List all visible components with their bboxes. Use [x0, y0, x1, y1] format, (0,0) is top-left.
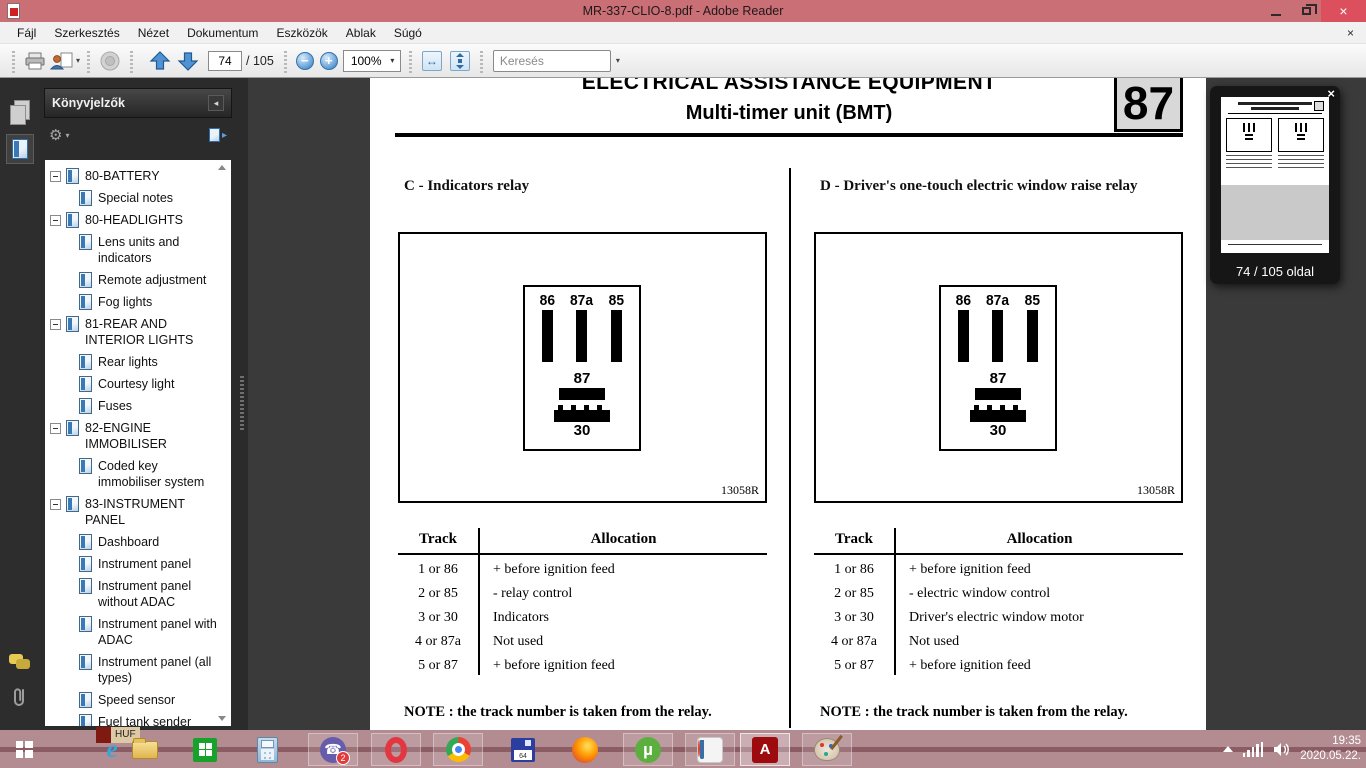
bookmark-icon	[79, 294, 92, 310]
menubar-close-icon[interactable]: ×	[1347, 22, 1354, 44]
bookmark-icon	[66, 168, 79, 184]
bookmark-icon	[66, 496, 79, 512]
folder-icon	[132, 741, 158, 759]
print-button[interactable]	[22, 48, 48, 74]
pdf-page: ELECTRICAL ASSISTANCE EQUIPMENT Multi-ti…	[370, 78, 1206, 730]
page-position-label: 74 / 105 oldal	[1210, 264, 1340, 279]
taskbar-file-explorer[interactable]	[120, 733, 170, 766]
system-tray: 19:35 2020.05.22.	[1223, 730, 1361, 768]
page-title-line1: ELECTRICAL ASSISTANCE EQUIPMENT	[395, 78, 1183, 95]
taskbar-utorrent[interactable]: µ	[623, 733, 673, 766]
bookmark-item[interactable]: Instrument panel (all types)	[45, 651, 231, 689]
mini-title-line	[1238, 102, 1312, 105]
menu-bar: Fájl Szerkesztés Nézet Dokumentum Eszköz…	[0, 22, 1366, 44]
collaborate-icon	[50, 51, 74, 71]
page-title-line2: Multi-timer unit (BMT)	[395, 102, 1183, 125]
firefox-icon	[572, 737, 598, 763]
menu-window[interactable]: Ablak	[337, 24, 385, 42]
viber-icon: ☎ 2	[320, 737, 346, 763]
bookmark-icon	[79, 534, 92, 550]
pin-bar	[992, 310, 1003, 362]
minus-icon: −	[301, 53, 309, 69]
pin-bar	[1027, 310, 1038, 362]
table-row: 1 or 86+ before ignition feed	[398, 555, 767, 579]
relay-top-pins: 86 87a 85	[941, 292, 1055, 362]
bookmarks-toolbar: ⚙ ▾ ▸	[40, 118, 236, 152]
chevron-left-icon: ◂	[214, 98, 219, 109]
bookmarks-header: Könyvjelzők ◂	[44, 88, 232, 118]
pin-bar	[975, 388, 1021, 400]
bookmark-item[interactable]: Remote adjustment	[45, 269, 231, 291]
bookmark-icon	[79, 398, 92, 414]
bookmark-icon	[79, 190, 92, 206]
mini-title-line	[1251, 107, 1299, 110]
bookmark-item[interactable]: Instrument panel	[45, 553, 231, 575]
table-row: 2 or 85- electric window control	[814, 579, 1183, 603]
bookmark-item[interactable]: Fuses	[45, 395, 231, 417]
mini-column	[1226, 118, 1272, 168]
section-heading: C - Indicators relay	[398, 178, 768, 195]
menu-edit[interactable]: Szerkesztés	[45, 24, 128, 42]
bookmark-icon	[79, 376, 92, 392]
opera-icon	[385, 737, 407, 763]
calculator-icon	[257, 737, 278, 763]
main-area: Könyvjelzők ◂ ⚙ ▾ ▸ 80-BATTERY Special n…	[0, 78, 1366, 730]
bookmark-icon	[79, 616, 92, 632]
taskbar: HUF e ☎ 2 64 µ A 19:35 2020.05.22.	[0, 730, 1366, 768]
bookmark-item[interactable]: 82-ENGINE IMMOBILISER	[45, 417, 231, 455]
floppy-icon: 64	[511, 738, 535, 762]
collapse-panel-button[interactable]: ◂	[208, 95, 224, 111]
relay-pin: 86	[539, 292, 556, 362]
utorrent-icon: µ	[635, 737, 661, 763]
comments-icon[interactable]	[9, 654, 31, 672]
pin-bar	[542, 310, 553, 362]
table-header: Track Allocation	[814, 528, 1183, 555]
bookmark-icon	[79, 458, 92, 474]
mini-chapter-box	[1314, 101, 1324, 111]
pin-bar	[611, 310, 622, 362]
tray-time: 19:35	[1300, 734, 1361, 749]
toolbar-grip[interactable]	[409, 49, 412, 73]
mini-empty-area	[1221, 185, 1329, 240]
bookmark-icon	[79, 556, 92, 572]
plus-icon: +	[325, 53, 333, 69]
share-review-button[interactable]: ▾	[50, 48, 80, 74]
mini-figure	[1226, 118, 1272, 152]
menu-file[interactable]: Fájl	[8, 24, 45, 42]
collapse-icon[interactable]	[50, 423, 61, 434]
taskbar-total-commander[interactable]: 64	[498, 733, 548, 766]
collapse-icon[interactable]	[50, 215, 61, 226]
zoom-level-value: 100%	[344, 54, 385, 68]
adobe-reader-icon: A	[752, 737, 778, 763]
tray-expand-icon[interactable]	[1223, 746, 1233, 752]
section-c: C - Indicators relay 86 87a 85 87 30 130…	[398, 178, 768, 730]
bookmark-icon	[79, 692, 92, 708]
bookmark-icon	[66, 212, 79, 228]
fit-page-glyph	[458, 59, 462, 63]
zoom-level-select[interactable]: 100% ▾	[343, 50, 401, 72]
chevron-down-icon: ▾	[76, 56, 80, 65]
relay-pin-87-label: 87	[525, 370, 639, 387]
bookmark-item[interactable]: Fuel tank sender	[45, 711, 231, 726]
network-signal-icon[interactable]	[1243, 742, 1264, 757]
scroll-up-icon[interactable]	[218, 165, 226, 170]
pin-bar	[554, 410, 610, 422]
chevron-down-icon: ▾	[385, 56, 400, 65]
bookmark-icon	[79, 654, 92, 670]
mini-columns	[1221, 114, 1329, 168]
arrow-down-icon	[177, 51, 199, 71]
menu-document[interactable]: Dokumentum	[178, 24, 267, 42]
search-area: ▾	[493, 50, 620, 72]
section-note: NOTE : the track number is taken from th…	[820, 704, 1128, 721]
toolbar-grip[interactable]	[130, 49, 133, 73]
toolbar-grip[interactable]	[87, 49, 90, 73]
section-d: D - Driver's one-touch electric window r…	[814, 178, 1184, 730]
mini-figure	[1278, 118, 1324, 152]
table-row: 3 or 30Indicators	[398, 603, 767, 627]
bookmark-icon	[79, 354, 92, 370]
bookmark-item[interactable]: Special notes	[45, 187, 231, 209]
splitter-grip-icon	[240, 374, 244, 430]
bookmark-item[interactable]: Instrument panel with ADAC	[45, 613, 231, 651]
relay-diagram: 86 87a 85 87 30	[523, 285, 641, 451]
bookmark-item[interactable]: 80-BATTERY	[45, 165, 231, 187]
upload-disabled-button	[97, 48, 123, 74]
taskbar-firefox[interactable]	[560, 733, 610, 766]
chevron-right-icon: ▸	[222, 130, 227, 141]
previous-page-button[interactable]	[147, 48, 173, 74]
next-page-button[interactable]	[175, 48, 201, 74]
panel-splitter[interactable]	[236, 78, 248, 730]
navigation-strip	[0, 78, 40, 730]
collapse-icon[interactable]	[50, 499, 61, 510]
table-row: 2 or 85- relay control	[398, 579, 767, 603]
page-preview-popup[interactable]: ×	[1210, 86, 1340, 284]
arrow-up-icon	[149, 51, 171, 71]
relay-pin: 87a	[985, 292, 1010, 362]
tray-clock[interactable]: 19:35 2020.05.22.	[1300, 734, 1361, 764]
toolbar-grip[interactable]	[12, 49, 15, 73]
figure-reference: 13058R	[1137, 483, 1175, 498]
internet-explorer-icon: e	[106, 737, 117, 762]
taskbar-store[interactable]	[180, 733, 230, 766]
bookmark-icon	[66, 420, 79, 436]
menu-help[interactable]: Súgó	[385, 24, 431, 42]
chapter-number-box: 87	[1114, 78, 1183, 132]
bookmarks-tree: 80-BATTERY Special notes 80-HEADLIGHTS L…	[45, 160, 231, 726]
paint-icon	[814, 738, 840, 761]
bookmark-icon	[66, 316, 79, 332]
table-row: 1 or 86+ before ignition feed	[814, 555, 1183, 579]
taskbar-viber[interactable]: ☎ 2	[308, 733, 358, 766]
search-input[interactable]	[493, 50, 611, 72]
minimize-button[interactable]	[1261, 0, 1291, 22]
table-row: 4 or 87aNot used	[398, 627, 767, 651]
relay-pin: 85	[1024, 292, 1041, 362]
relay-pin: 86	[955, 292, 972, 362]
taskbar-paint[interactable]	[802, 733, 852, 766]
store-icon	[193, 738, 217, 762]
window-title: MR-337-CLIO-8.pdf - Adobe Reader	[0, 0, 1366, 22]
bookmark-icon	[79, 234, 92, 250]
pin-bar	[576, 310, 587, 362]
taskbar-chrome[interactable]	[433, 733, 483, 766]
allocation-table: Track Allocation 1 or 86+ before ignitio…	[398, 528, 767, 675]
printer-icon	[24, 52, 46, 70]
fit-width-button[interactable]: ↔	[419, 48, 445, 74]
bookmark-item[interactable]: Dashboard	[45, 531, 231, 553]
window-controls: ×	[1261, 0, 1366, 22]
bookmarks-panel-icon[interactable]	[6, 134, 34, 164]
bookmark-item[interactable]: Courtesy light	[45, 373, 231, 395]
page-thumbnails-icon[interactable]	[10, 100, 30, 124]
bookmark-item[interactable]: Coded key immobiliser system	[45, 455, 231, 493]
attachments-icon[interactable]	[11, 686, 29, 713]
bookmark-page-icon	[209, 128, 220, 142]
zoom-in-button[interactable]: +	[320, 52, 338, 70]
pin-bar	[958, 310, 969, 362]
collapse-icon[interactable]	[50, 319, 61, 330]
bookmark-item[interactable]: Rear lights	[45, 351, 231, 373]
relay-figure: 86 87a 85 87 30 13058R	[814, 232, 1183, 503]
fit-page-icon	[450, 51, 470, 71]
restore-button[interactable]	[1291, 0, 1321, 22]
bookmarks-title: Könyvjelzők	[52, 96, 125, 110]
relay-figure: 86 87a 85 87 30 13058R	[398, 232, 767, 503]
table-row: 5 or 87+ before ignition feed	[814, 651, 1183, 675]
options-button[interactable]: ⚙ ▾	[49, 126, 69, 144]
relay-pin: 87a	[569, 292, 594, 362]
page-total-label: / 105	[246, 54, 274, 68]
taskbar-calculator[interactable]	[242, 733, 292, 766]
bookmark-icon	[79, 714, 92, 726]
fit-page-button[interactable]	[447, 48, 473, 74]
minimize-icon	[1271, 14, 1281, 16]
menu-tools[interactable]: Eszközök	[267, 24, 336, 42]
table-row: 4 or 87aNot used	[814, 627, 1183, 651]
scroll-down-icon[interactable]	[218, 716, 226, 721]
taskbar-opera[interactable]	[371, 733, 421, 766]
gear-icon: ⚙	[49, 126, 62, 144]
goto-bookmark-button[interactable]: ▸	[209, 128, 227, 142]
bookmark-item[interactable]: Fog lights	[45, 291, 231, 313]
bookmark-item[interactable]: 81-REAR AND INTERIOR LIGHTS	[45, 313, 231, 351]
windows-logo-icon	[16, 741, 33, 758]
bookmark-item[interactable]: Speed sensor	[45, 689, 231, 711]
zoom-out-button[interactable]: −	[296, 52, 314, 70]
header-rule	[395, 133, 1183, 137]
relay-diagram: 86 87a 85 87 30	[939, 285, 1057, 451]
fit-width-icon: ↔	[422, 51, 442, 71]
tray-date: 2020.05.22.	[1300, 749, 1361, 764]
table-row: 5 or 87+ before ignition feed	[398, 651, 767, 675]
toolbar-grip[interactable]	[480, 49, 483, 73]
taskbar-adobe-reader[interactable]: A	[740, 733, 790, 766]
taskbar-java[interactable]	[685, 733, 735, 766]
section-note: NOTE : the track number is taken from th…	[404, 704, 712, 721]
page-thumbnail	[1221, 97, 1329, 253]
restore-icon	[1302, 7, 1311, 15]
close-icon: ×	[1339, 3, 1347, 19]
search-options-icon[interactable]: ▾	[616, 56, 620, 65]
bookmark-icon	[79, 272, 92, 288]
bookmarks-panel: Könyvjelzők ◂ ⚙ ▾ ▸ 80-BATTERY Special n…	[40, 78, 236, 730]
mini-column	[1278, 118, 1324, 168]
relay-pin-30-label: 30	[941, 422, 1055, 439]
toolbar: ▾ / 105 − + 100% ▾ ↔ ▾	[0, 44, 1366, 78]
bookmark-icon	[79, 578, 92, 594]
chrome-icon	[446, 737, 471, 762]
relay-pin-87-label: 87	[941, 370, 1055, 387]
menu-view[interactable]: Nézet	[129, 24, 178, 42]
figure-reference: 13058R	[721, 483, 759, 498]
relay-top-pins: 86 87a 85	[525, 292, 639, 362]
close-button[interactable]: ×	[1321, 0, 1366, 22]
mini-footer-line	[1228, 244, 1322, 245]
start-button[interactable]	[0, 730, 48, 768]
table-row: 3 or 30Driver's electric window motor	[814, 603, 1183, 627]
bookmark-item[interactable]: Instrument panel without ADAC	[45, 575, 231, 613]
pin-bar	[559, 388, 605, 400]
relay-pin: 85	[608, 292, 625, 362]
table-header: Track Allocation	[398, 528, 767, 555]
globe-disabled-icon	[99, 50, 121, 72]
bookmark-page-icon	[12, 139, 28, 159]
page-number-input[interactable]	[208, 51, 242, 71]
column-divider	[789, 168, 791, 728]
viber-badge: 2	[336, 751, 350, 765]
speaker-icon[interactable]	[1273, 742, 1290, 757]
paperclip-icon	[11, 686, 29, 708]
section-heading: D - Driver's one-touch electric window r…	[814, 178, 1184, 195]
pin-bar	[970, 410, 1026, 422]
bookmark-item[interactable]: 80-HEADLIGHTS	[45, 209, 231, 231]
document-area: ELECTRICAL ASSISTANCE EQUIPMENT Multi-ti…	[248, 78, 1366, 730]
toolbar-grip[interactable]	[284, 49, 287, 73]
java-icon	[697, 737, 723, 763]
bookmark-item[interactable]: Lens units and indicators	[45, 231, 231, 269]
collapse-icon[interactable]	[50, 171, 61, 182]
bookmark-item[interactable]: 83-INSTRUMENT PANEL	[45, 493, 231, 531]
chevron-down-icon: ▾	[65, 131, 69, 140]
title-bar: MR-337-CLIO-8.pdf - Adobe Reader ×	[0, 0, 1366, 22]
allocation-table: Track Allocation 1 or 86+ before ignitio…	[814, 528, 1183, 675]
relay-pin-30-label: 30	[525, 422, 639, 439]
